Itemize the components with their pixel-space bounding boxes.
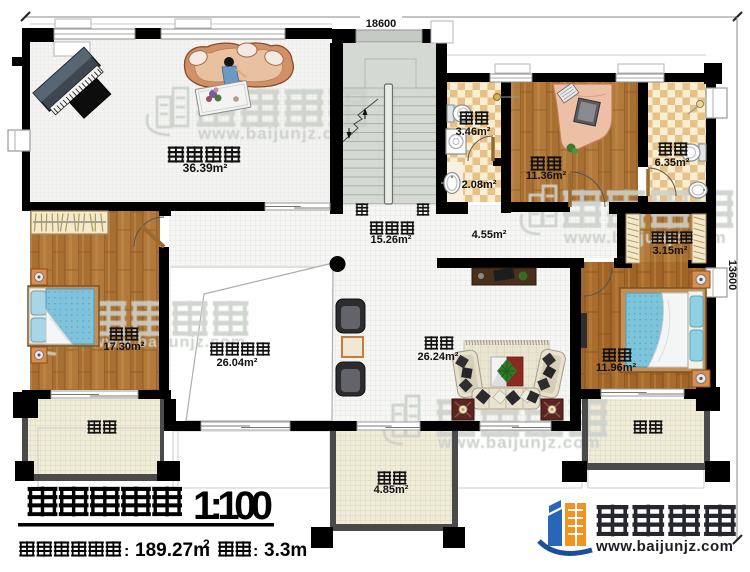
svg-text:6.35m²: 6.35m² — [655, 157, 690, 169]
svg-text:189.27m: 189.27m — [135, 540, 210, 561]
svg-text:3.15m²: 3.15m² — [653, 245, 688, 257]
svg-text:18600: 18600 — [366, 18, 397, 30]
svg-text:3.3m: 3.3m — [264, 540, 307, 561]
svg-text:www.baijunjz.com: www.baijunjz.com — [595, 538, 733, 555]
svg-text:1:100: 1:100 — [193, 484, 273, 528]
svg-text:26.04m²: 26.04m² — [217, 357, 258, 369]
svg-text::: : — [124, 543, 129, 560]
svg-text:36.39m²: 36.39m² — [183, 161, 228, 175]
svg-text:13600: 13600 — [726, 260, 738, 291]
svg-text:11.96m²: 11.96m² — [596, 362, 637, 374]
svg-text:4.85m²: 4.85m² — [374, 484, 409, 496]
svg-text:4.55m²: 4.55m² — [472, 229, 507, 241]
svg-text:11.36m²: 11.36m² — [526, 170, 567, 182]
svg-text:www.baijunjz.com: www.baijunjz.com — [437, 433, 601, 452]
svg-text:3.46m²: 3.46m² — [456, 126, 491, 138]
svg-text:15.26m²: 15.26m² — [371, 234, 412, 246]
svg-text:17.30m²: 17.30m² — [104, 341, 145, 353]
svg-text::: : — [253, 543, 258, 560]
svg-text:2.08m²: 2.08m² — [462, 179, 497, 191]
svg-text:26.24m²: 26.24m² — [418, 351, 459, 363]
svg-text:2: 2 — [203, 537, 210, 551]
